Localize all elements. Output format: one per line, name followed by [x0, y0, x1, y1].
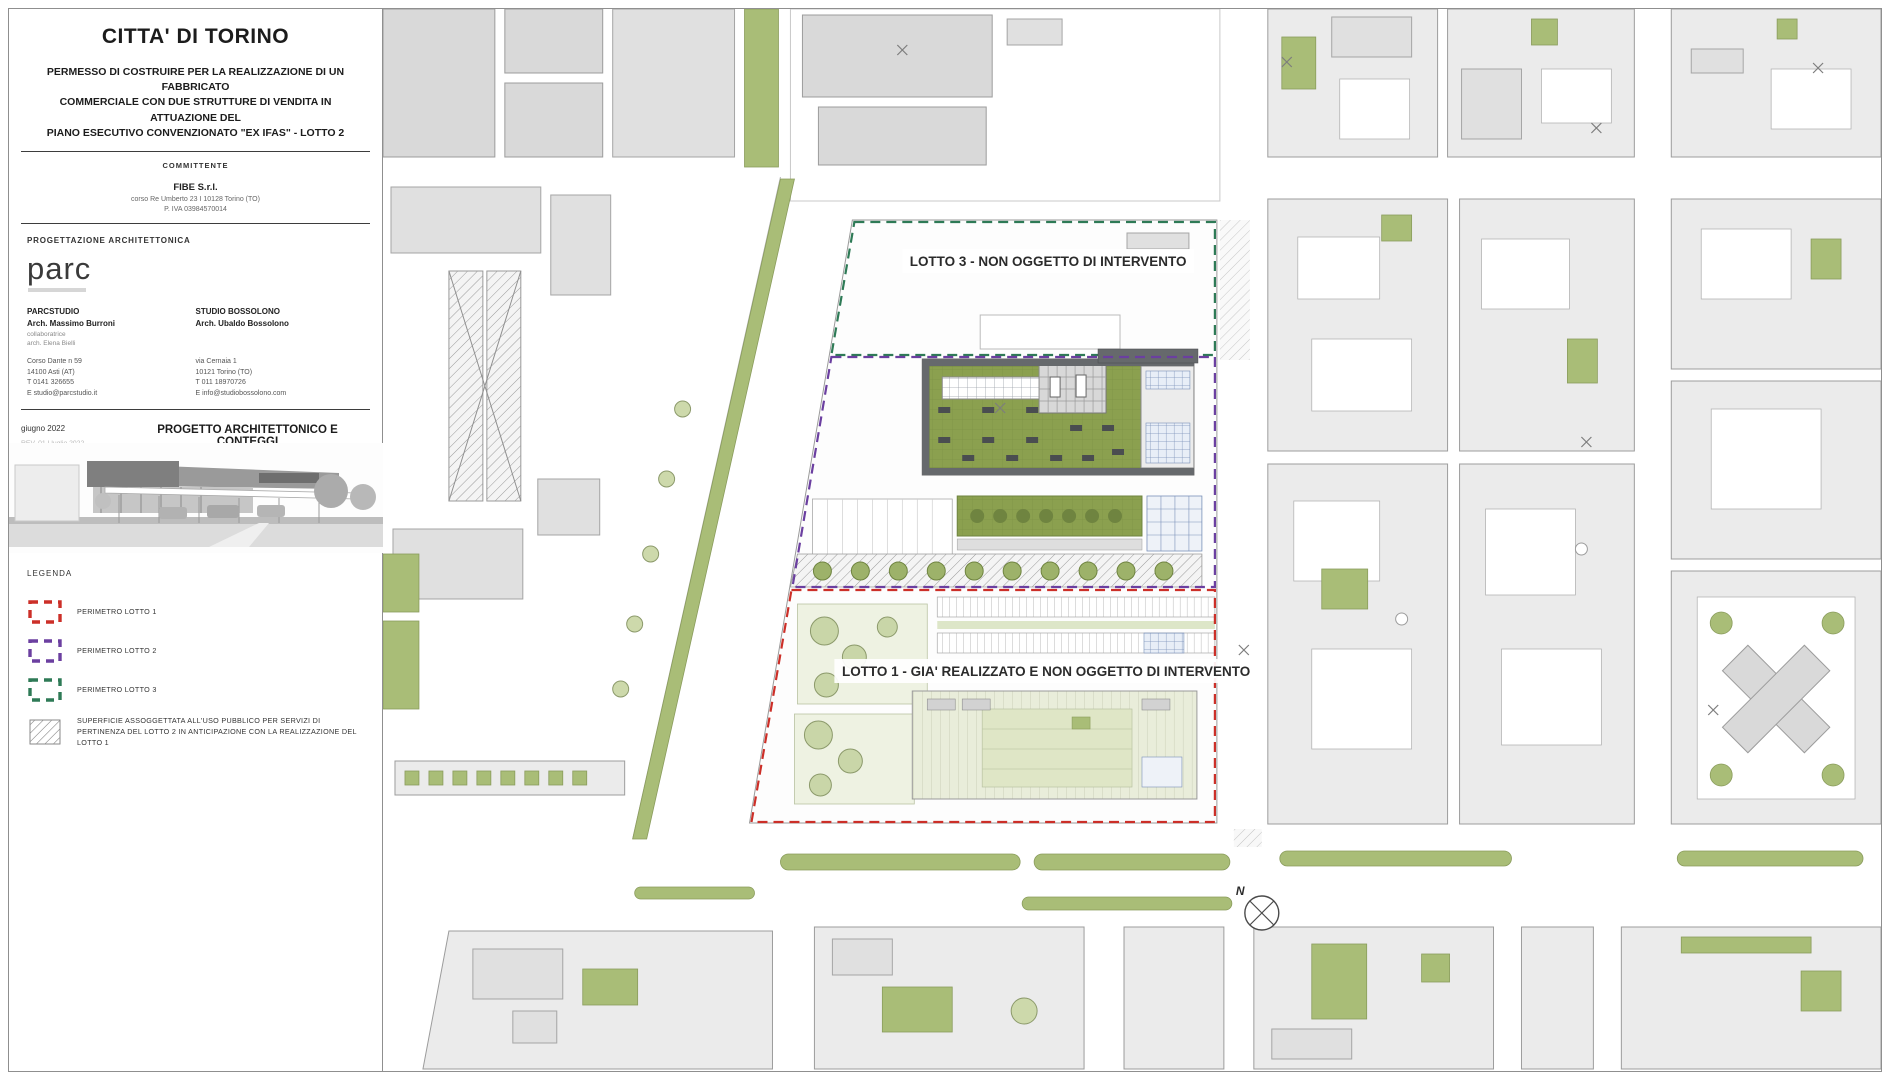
perimeter-lotto1-swatch-icon: [27, 599, 63, 625]
studio1-collab-label: collaboratrice: [27, 330, 196, 339]
legend-label: PERIMETRO LOTTO 1: [77, 607, 157, 618]
lotto3-label: LOTTO 3 - NON OGGETTO DI INTERVENTO: [910, 254, 1187, 269]
north-label: N: [1236, 884, 1245, 898]
permit-line-1: PERMESSO DI COSTRUIRE PER LA REALIZZAZIO…: [29, 65, 362, 95]
studio2-architect: Arch. Ubaldo Bossolono: [196, 318, 365, 330]
committente-label: COMMITTENTE: [9, 161, 382, 170]
drawing-sheet: CITTA' DI TORINO PERMESSO DI COSTRUIRE P…: [8, 8, 1882, 1072]
render-image: [9, 443, 383, 553]
parc-logo: parc: [27, 253, 382, 284]
render-thumbnail: [9, 443, 383, 553]
city-title: CITTA' DI TORINO: [9, 25, 382, 49]
legend-label: SUPERFICIE ASSOGGETTATA ALL'USO PUBBLICO…: [77, 716, 357, 748]
studio2-email: E info@studiobossolono.com: [196, 389, 365, 400]
studio1-address1: Corso Dante n 59: [27, 357, 196, 368]
studio1-name: PARCSTUDIO: [27, 306, 196, 318]
parc-logo-tagline: [28, 288, 86, 292]
issue-date: giugno 2022: [21, 424, 125, 433]
divider: [21, 409, 370, 410]
studio2-name: STUDIO BOSSOLONO: [196, 306, 365, 318]
studio2-phone: T 011 18970726: [196, 378, 365, 389]
studio1-phone: T 0141 326655: [27, 378, 196, 389]
site-plan: LOTTO 3 - NON OGGETTO DI INTERVENTO LOTT…: [383, 9, 1881, 1071]
legend-item-superficie: SUPERFICIE ASSOGGETTATA ALL'USO PUBBLICO…: [27, 716, 367, 748]
progettazione-label: PROGETTAZIONE ARCHITETTONICA: [27, 236, 382, 245]
legend-label: PERIMETRO LOTTO 2: [77, 646, 157, 657]
legend-label: PERIMETRO LOTTO 3: [77, 685, 157, 696]
title-block: CITTA' DI TORINO PERMESSO DI COSTRUIRE P…: [9, 9, 383, 1071]
lotto2-building: [922, 349, 1198, 475]
studio2-address2: 10121 Torino (TO): [196, 368, 365, 379]
studio-parcstudio: PARCSTUDIO Arch. Massimo Burroni collabo…: [27, 306, 196, 399]
studio1-email: E studio@parcstudio.it: [27, 389, 196, 400]
studio1-collab: arch. Elena Bielli: [27, 339, 196, 348]
legend-title: LEGENDA: [27, 569, 367, 578]
legend-item-lotto1: PERIMETRO LOTTO 1: [27, 599, 367, 625]
studio1-architect: Arch. Massimo Burroni: [27, 318, 196, 330]
client-piva: P. IVA 03984570014: [9, 206, 382, 213]
legend: LEGENDA PERIMETRO LOTTO 1 PERIMETRO LOTT…: [27, 569, 367, 748]
perimeter-lotto3-swatch-icon: [27, 677, 63, 703]
designers: PARCSTUDIO Arch. Massimo Burroni collabo…: [27, 306, 364, 399]
permit-line-2: COMMERCIALE CON DUE STRUTTURE DI VENDITA…: [29, 95, 362, 125]
site-plan-svg: LOTTO 3 - NON OGGETTO DI INTERVENTO LOTT…: [383, 9, 1881, 1071]
lotto1-label: LOTTO 1 - GIA' REALIZZATO E NON OGGETTO …: [842, 664, 1250, 679]
permit-line-3: PIANO ESECUTIVO CONVENZIONATO "EX IFAS" …: [29, 126, 362, 141]
client-address: corso Re Umberto 23 I 10128 Torino (TO): [9, 196, 382, 203]
studio1-address2: 14100 Asti (AT): [27, 368, 196, 379]
hatch-swatch-icon: [27, 719, 63, 745]
studio-bossolono: STUDIO BOSSOLONO Arch. Ubaldo Bossolono …: [196, 306, 365, 399]
divider: [21, 151, 370, 152]
studio2-address1: via Cernaia 1: [196, 357, 365, 368]
perimeter-lotto2-swatch-icon: [27, 638, 63, 664]
divider: [21, 223, 370, 224]
client-name: FIBE S.r.l.: [9, 182, 382, 193]
permit-description: PERMESSO DI COSTRUIRE PER LA REALIZZAZIO…: [9, 65, 382, 141]
legend-item-lotto3: PERIMETRO LOTTO 3: [27, 677, 367, 703]
legend-item-lotto2: PERIMETRO LOTTO 2: [27, 638, 367, 664]
